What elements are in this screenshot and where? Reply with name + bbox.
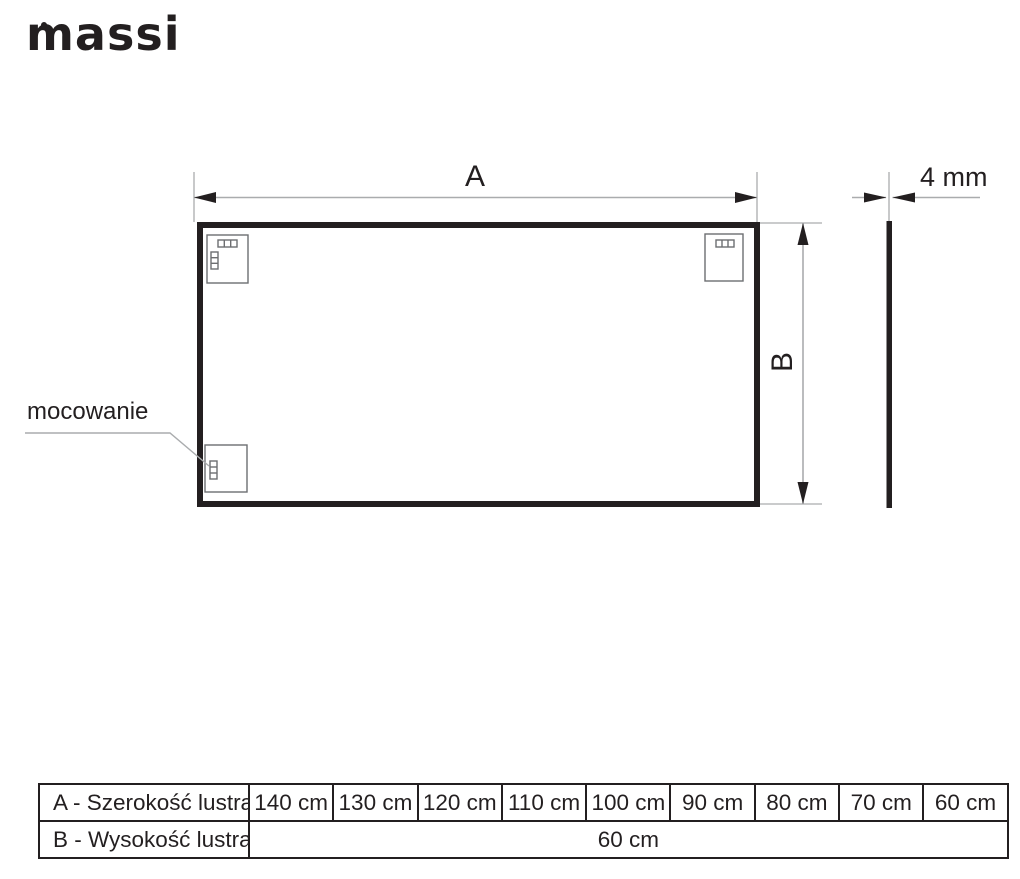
mirror-side-profile <box>887 221 893 508</box>
width-value-cell: 100 cm <box>586 784 670 821</box>
size-table: A - Szerokość lustra 140 cm 130 cm 120 c… <box>38 783 1009 859</box>
width-value-cell: 90 cm <box>670 784 754 821</box>
product-dimension-sheet: massi <box>0 0 1020 879</box>
dimension-b-label: B <box>766 352 800 372</box>
mounting-label: mocowanie <box>27 398 148 426</box>
width-value-cell: 60 cm <box>923 784 1007 821</box>
width-value-cell: 140 cm <box>249 784 333 821</box>
thickness-label: 4 mm <box>920 162 988 193</box>
mirror-front-outline <box>200 225 757 504</box>
table-row-height: B - Wysokość lustra 60 cm <box>39 821 1008 858</box>
row-label-height: B - Wysokość lustra <box>39 821 249 858</box>
mounting-bracket-top-right-icon <box>705 234 743 281</box>
width-value-cell: 120 cm <box>418 784 502 821</box>
width-value-cell: 80 cm <box>755 784 839 821</box>
arrowhead-inward-left-icon <box>864 193 887 203</box>
mirror-technical-drawing <box>0 0 1020 770</box>
mounting-bracket-bottom-left-icon <box>205 445 247 492</box>
arrowhead-left-icon <box>194 192 216 203</box>
dimension-a-label: A <box>465 160 485 194</box>
width-value-cell: 70 cm <box>839 784 923 821</box>
mirror-side-view <box>852 172 980 508</box>
arrowhead-down-icon <box>798 482 809 504</box>
arrowhead-up-icon <box>798 223 809 245</box>
arrowhead-inward-right-icon <box>893 193 916 203</box>
table-row-width: A - Szerokość lustra 140 cm 130 cm 120 c… <box>39 784 1008 821</box>
height-value-cell: 60 cm <box>249 821 1008 858</box>
width-value-cell: 130 cm <box>333 784 417 821</box>
width-value-cell: 110 cm <box>502 784 586 821</box>
mounting-bracket-top-left-icon <box>207 235 248 283</box>
row-label-width: A - Szerokość lustra <box>39 784 249 821</box>
mounting-leader-line <box>25 433 209 466</box>
arrowhead-right-icon <box>735 192 757 203</box>
